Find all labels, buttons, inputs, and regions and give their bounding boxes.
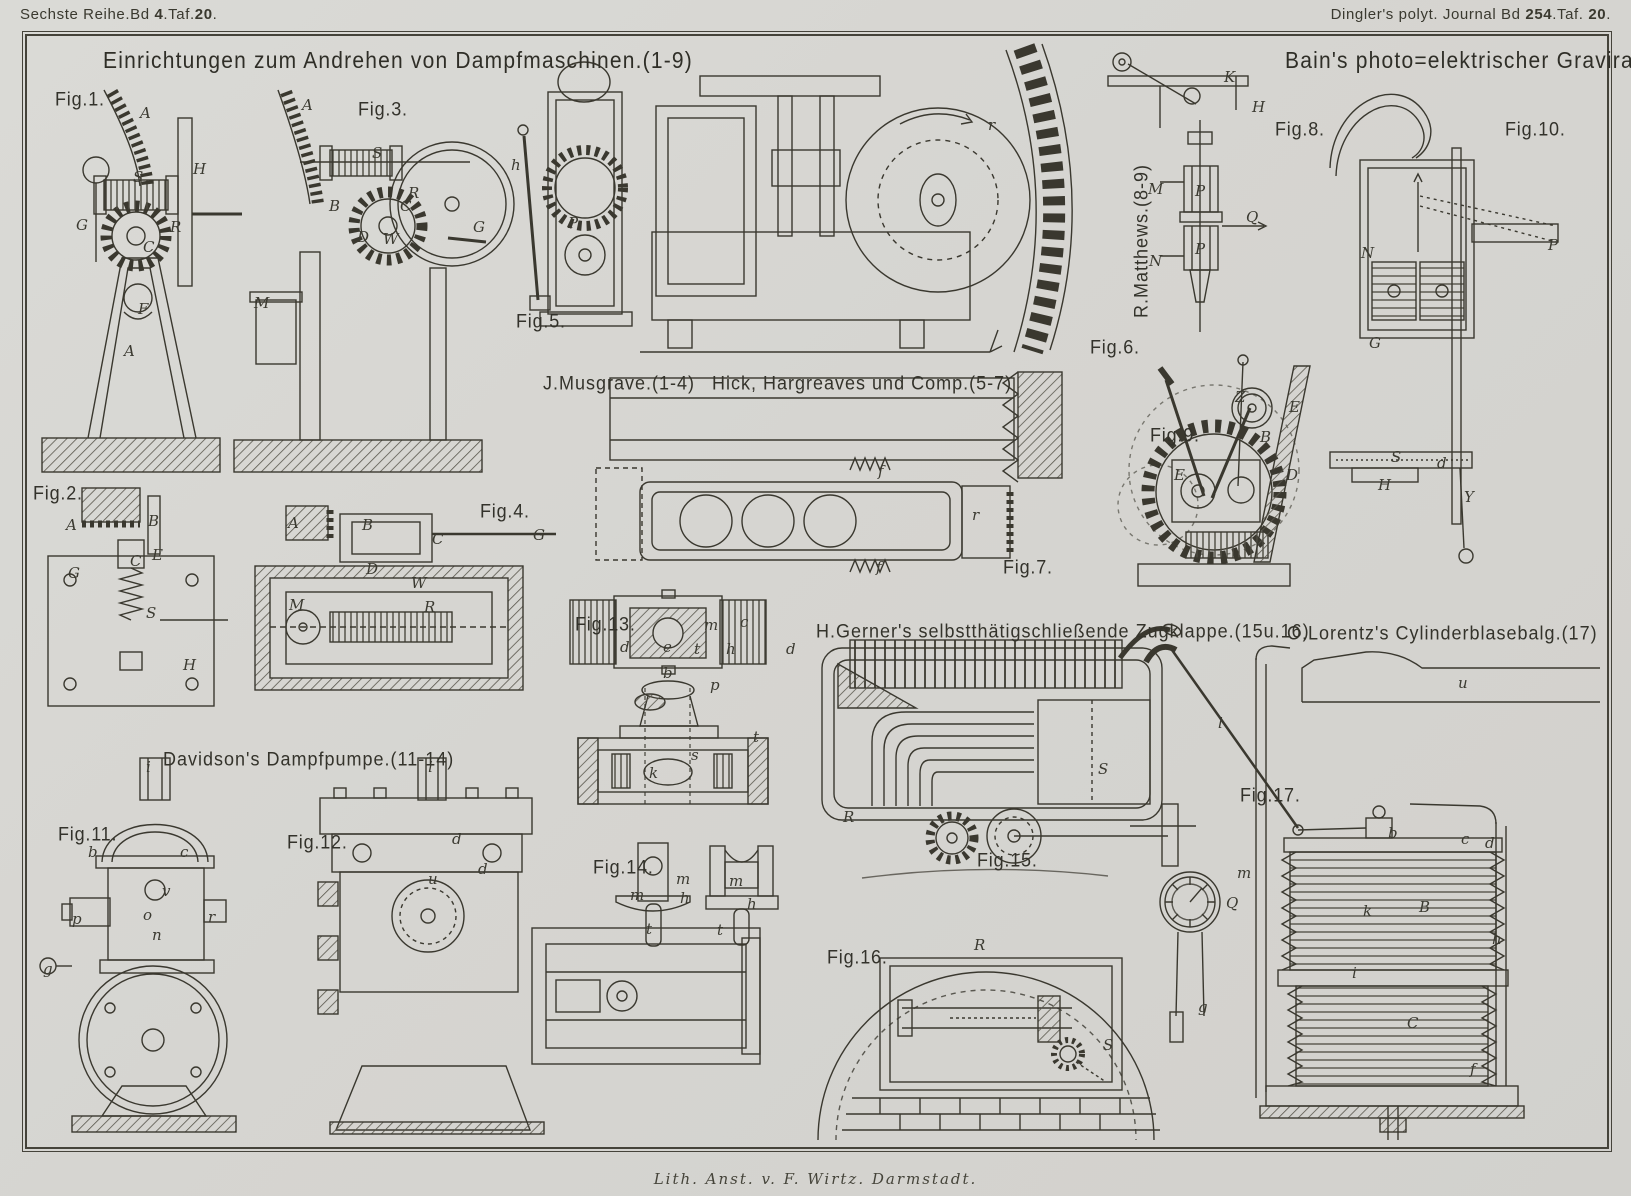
fig-15-drawing — [822, 622, 1196, 866]
fig-4-drawing — [255, 506, 556, 690]
fig-8-drawing — [1108, 53, 1266, 332]
fig-17-drawing — [1146, 646, 1600, 1140]
fig-5-drawing — [518, 62, 632, 326]
lithographer-credit: Lith. Anst. v. F. Wirtz. Darmstadt. — [0, 1170, 1631, 1188]
fig-1-drawing — [42, 90, 242, 472]
fig-6-drawing — [640, 44, 1072, 352]
fig-9-drawing — [1118, 355, 1310, 586]
fig-10-drawing — [1330, 94, 1558, 563]
fig-2-drawing — [48, 488, 228, 706]
fig-13-drawing — [570, 590, 768, 806]
fig-16-drawing — [818, 869, 1220, 1140]
fig-7-drawing — [596, 372, 1062, 572]
plate-page: Sechste Reihe.Bd 4.Taf.20. Dingler's pol… — [0, 0, 1631, 1196]
plate-drawings — [0, 0, 1631, 1196]
fig-12-drawing — [318, 758, 760, 1134]
fig-11-drawing — [40, 758, 236, 1132]
fig-3-drawing — [234, 90, 514, 472]
fig-14-drawing — [616, 843, 778, 946]
